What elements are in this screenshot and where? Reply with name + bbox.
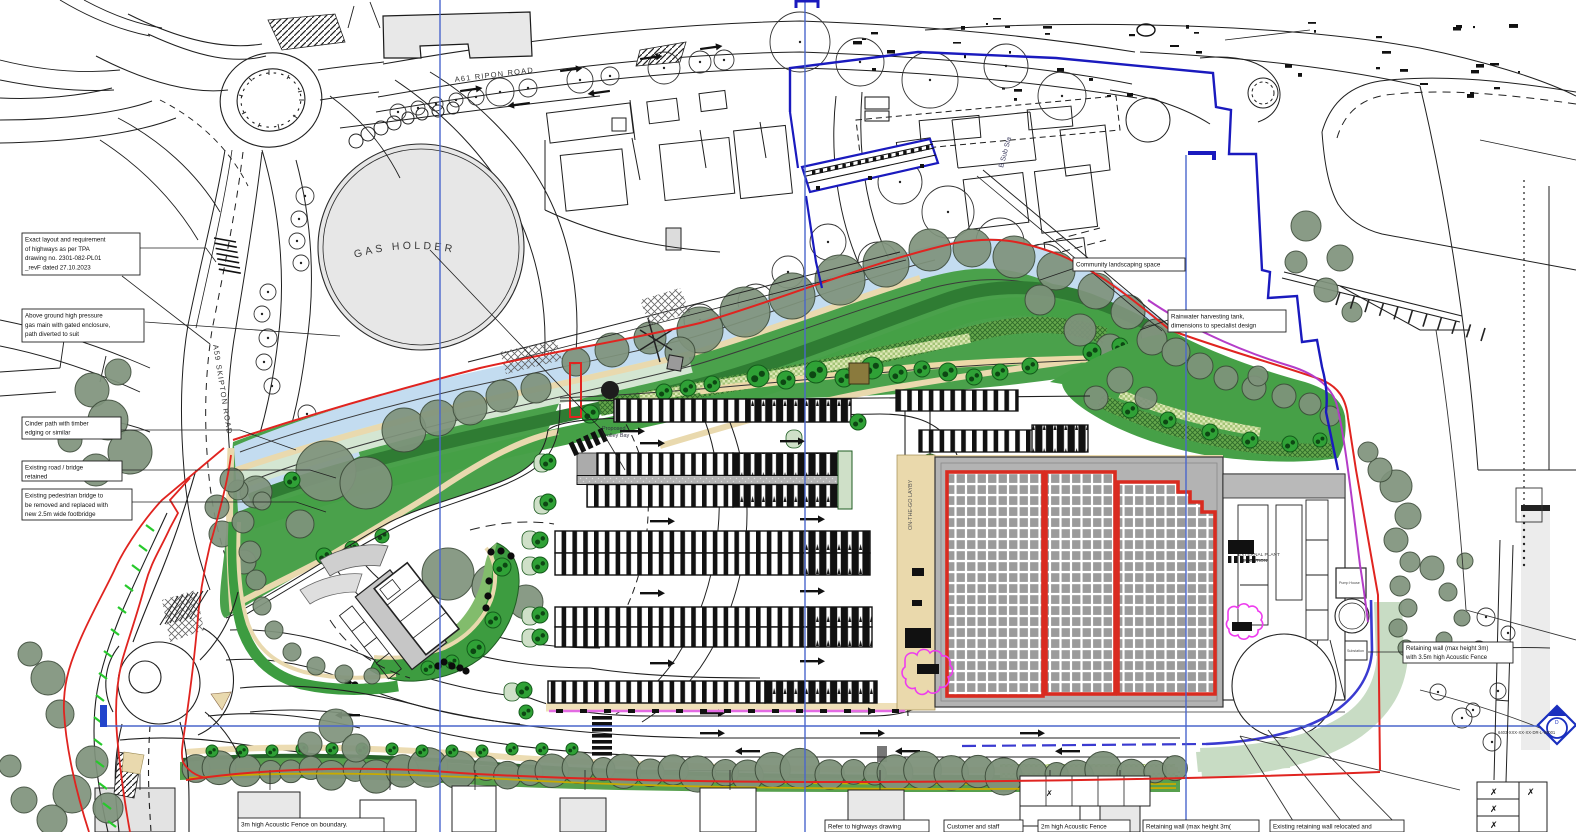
svg-text:Customer and staff: Customer and staff xyxy=(947,823,999,830)
svg-text:gas main with gated enclosure,: gas main with gated enclosure, xyxy=(25,322,111,329)
svg-text:✗: ✗ xyxy=(1527,787,1535,797)
svg-text:Retaining wall (max height 3m): Retaining wall (max height 3m) xyxy=(1406,646,1488,652)
svg-text:6403-XXX-XX-XX-DR-L-90001: 6403-XXX-XX-XX-DR-L-90001 xyxy=(1498,730,1556,735)
svg-text:Substation: Substation xyxy=(1347,649,1364,653)
svg-text:new 2.5m wide footbridge: new 2.5m wide footbridge xyxy=(25,511,96,518)
svg-text:Existing road / bridge: Existing road / bridge xyxy=(25,464,84,471)
svg-text:be removed and replaced with: be removed and replaced with xyxy=(25,502,108,509)
svg-text:Cinder path with timber: Cinder path with timber xyxy=(25,420,89,427)
svg-text:Refer to highways drawing: Refer to highways drawing xyxy=(828,823,901,830)
svg-text:Exact layout and requirement: Exact layout and requirement xyxy=(25,236,106,243)
svg-text:ON-THE-GO LAYBY: ON-THE-GO LAYBY xyxy=(908,479,914,530)
svg-text:D: D xyxy=(1555,720,1559,726)
svg-text:Above ground high pressure: Above ground high pressure xyxy=(25,312,103,319)
svg-text:Community landscaping space: Community landscaping space xyxy=(1076,261,1161,268)
svg-text:Rainwater harvesting tank,: Rainwater harvesting tank, xyxy=(1171,313,1245,320)
svg-text:✗: ✗ xyxy=(1490,820,1498,830)
svg-text:✗: ✗ xyxy=(1046,789,1053,798)
svg-text:drawing no. 2301-082-PL01: drawing no. 2301-082-PL01 xyxy=(25,255,102,262)
svg-text:Existing pedestrian bridge to: Existing pedestrian bridge to xyxy=(25,492,104,499)
svg-text:path diverted to suit: path diverted to suit xyxy=(25,331,79,338)
svg-text:retained: retained xyxy=(25,473,48,480)
svg-text:Existing retaining wall reloca: Existing retaining wall relocated and xyxy=(1273,823,1372,830)
svg-text:Pump House: Pump House xyxy=(1339,581,1360,585)
svg-text:dimensions to specialist desig: dimensions to specialist design xyxy=(1171,322,1257,329)
svg-text:of highways as per TPA: of highways as per TPA xyxy=(25,246,91,253)
svg-text:with 3.5m high Acoustic Fence: with 3.5m high Acoustic Fence xyxy=(1405,655,1488,661)
svg-text:Retaining wall (max height 3m(: Retaining wall (max height 3m( xyxy=(1146,823,1232,830)
svg-text:✗: ✗ xyxy=(1490,787,1498,797)
svg-text:2m high Acoustic Fence: 2m high Acoustic Fence xyxy=(1041,823,1107,830)
svg-text:3m high Acoustic Fence on boun: 3m high Acoustic Fence on boundary. xyxy=(241,822,348,829)
svg-text:_revF dated 27.10.2023: _revF dated 27.10.2023 xyxy=(24,265,91,272)
svg-text:edging or similar: edging or similar xyxy=(25,429,70,436)
svg-text:✗: ✗ xyxy=(1490,804,1498,814)
